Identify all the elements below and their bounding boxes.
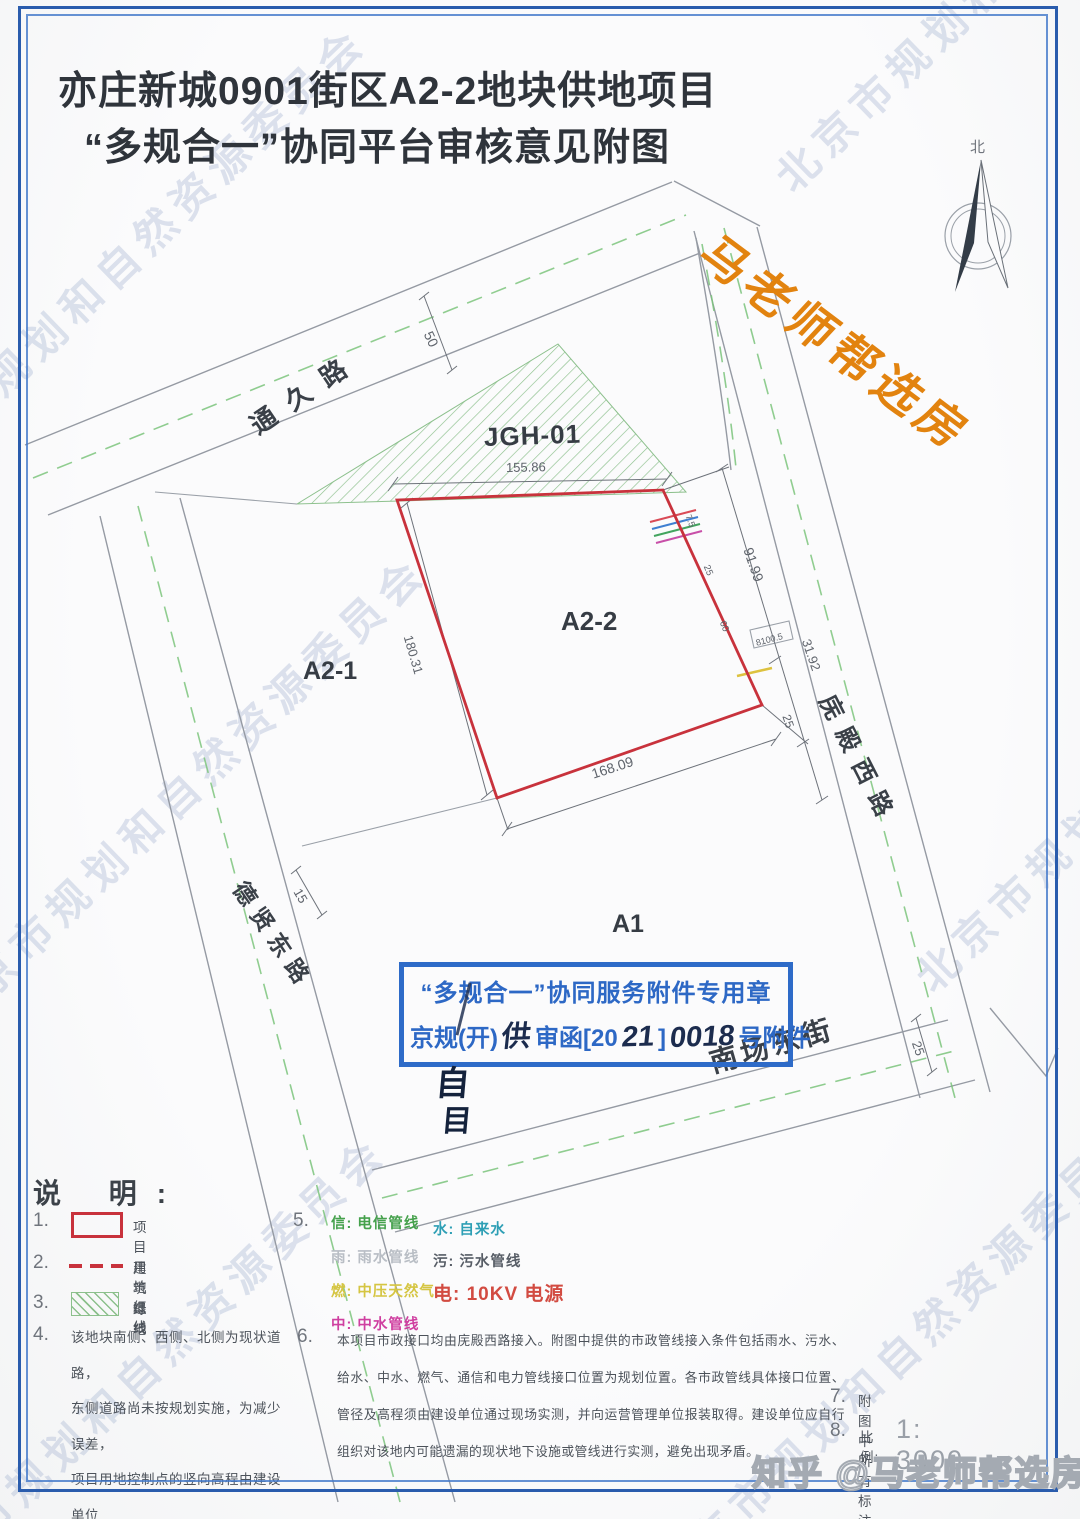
- project-red-line: [397, 490, 762, 798]
- approval-stamp: “多规合一”协同服务附件专用章 京规(开)供审函[2021]0018号附件: [399, 962, 793, 1067]
- stamp-seg-handwritten: 供: [496, 1012, 538, 1055]
- utility-code-sewage: 污: 污水管线: [433, 1250, 521, 1271]
- legend-item-number: 4.: [33, 1324, 49, 1346]
- red-line-swatch: [71, 1212, 123, 1238]
- stamp-seg-printed: 号附件: [738, 1025, 810, 1052]
- stamp-title: “多规合一”协同服务附件专用章: [404, 973, 788, 1008]
- legend-item-number: 5.: [293, 1210, 309, 1232]
- setback-dash-swatch: [69, 1264, 123, 1268]
- block-boundaries: [155, 492, 793, 846]
- legend-item-number: 8.: [830, 1420, 846, 1442]
- page-title-line1: 亦庄新城0901街区A2-2地块供地项目: [58, 60, 717, 116]
- parcel-label-jgh01: JGH-01: [483, 419, 581, 453]
- utility-code-tap-water: 水: 自来水: [433, 1218, 506, 1239]
- stamp-reference-number: 京规(开)供审函[2021]0018号附件: [410, 1013, 782, 1055]
- parcel-label-a2-2: A2-2: [561, 606, 617, 637]
- legend-item-number: 3.: [33, 1292, 49, 1314]
- utility-code-gas: 燃: 中压天然气: [331, 1280, 435, 1301]
- zhihu-credit: 知乎 @马老师帮选房: [752, 1446, 1080, 1495]
- legend-heading: 说 明:: [33, 1172, 186, 1212]
- stamp-seg-printed: 京规(开): [410, 1025, 498, 1052]
- parcel-label-a1: A1: [612, 910, 644, 939]
- scanned-planning-map-page: 北京市规划和自然资源委员会 北京市规划和自然资源委员会 北京市规划和自然资源委员…: [0, 0, 1080, 1519]
- legend-item-number: 2.: [33, 1252, 49, 1274]
- legend-item-number: 1.: [33, 1210, 49, 1232]
- legend-item-number: 7.: [830, 1386, 846, 1408]
- parcel-label-a2-1: A2-1: [303, 657, 357, 686]
- utility-code-telecom: 信: 电信管线: [331, 1212, 419, 1233]
- legend-note-text: 该地块南侧、西侧、北侧为现状道路， 东侧道路尚未按规划实施，为减少误差， 项目用…: [71, 1320, 289, 1519]
- north-arrow-icon: [945, 160, 1011, 292]
- page-title-line2: “多规合一”协同平台审核意见附图: [84, 116, 670, 171]
- legend-item-number: 6.: [297, 1326, 313, 1348]
- stamp-seg-handwritten: 21: [616, 1020, 660, 1054]
- dim-parcel-top: 155.86: [506, 459, 546, 475]
- green-hatch-swatch: [71, 1292, 119, 1316]
- stamp-seg-handwritten: 0018: [664, 1020, 740, 1056]
- handwriting-mark: 目: [440, 1096, 474, 1140]
- utility-code-power: 电: 10KV 电源: [433, 1279, 564, 1306]
- utility-code-rainwater: 雨: 雨水管线: [331, 1246, 419, 1267]
- stamp-seg-printed: 审函[20: [535, 1025, 618, 1052]
- north-label: 北: [970, 136, 985, 157]
